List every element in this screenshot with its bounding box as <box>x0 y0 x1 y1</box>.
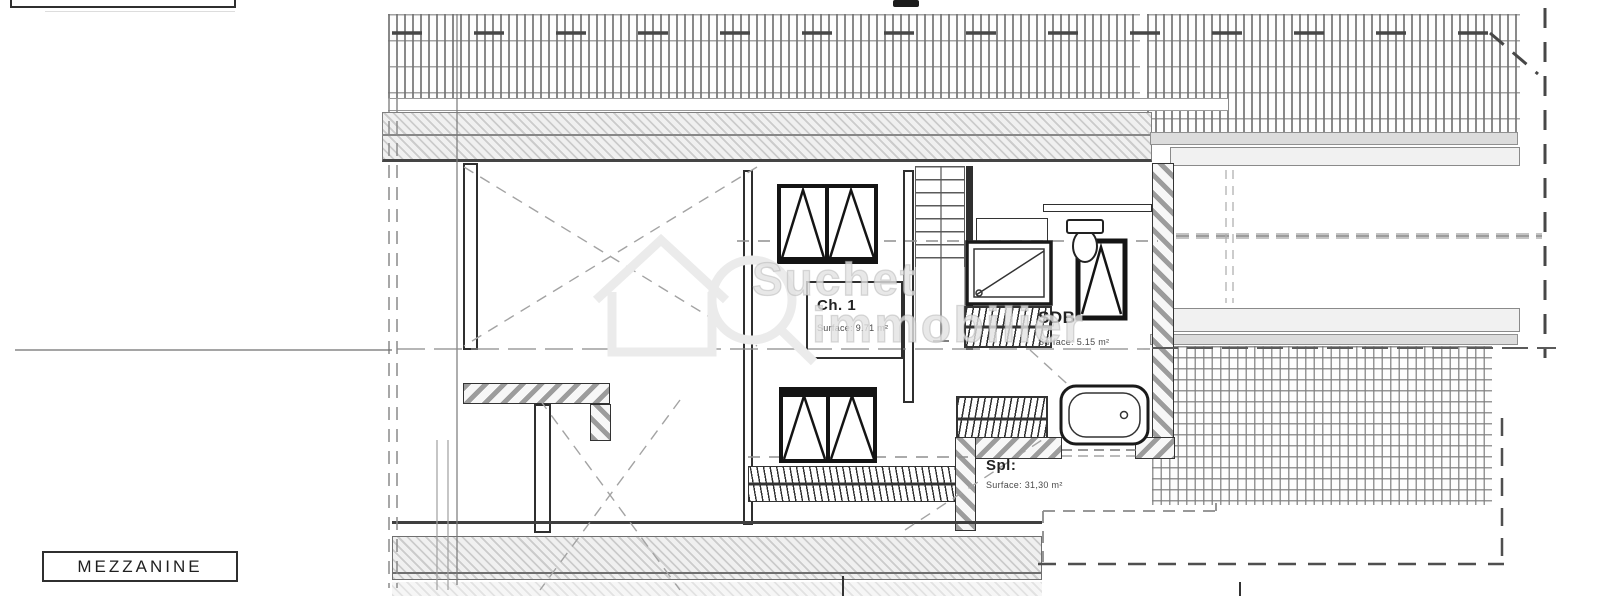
staircase-centerline <box>933 166 949 341</box>
room-name-sdb: SDB <box>1038 308 1158 328</box>
room-name-ch1: Ch. 1 <box>817 297 901 314</box>
room-surface-spl: Surface: 31,30 m² <box>986 480 1126 490</box>
room-label-ch1: Ch. 1 Surface: 9.71 m² <box>806 281 903 359</box>
room-surface-sdb: Surface: 5.15 m² <box>1038 337 1158 347</box>
floor-label: MEZZANINE <box>77 557 202 577</box>
bathtub <box>1061 386 1148 444</box>
reference-ticks <box>843 576 1240 596</box>
floor-plan-canvas: Ch. 1 Surface: 9.71 m² SDB Surface: 5.15… <box>0 0 1600 596</box>
room-surface-ch1: Surface: 9.71 m² <box>817 323 901 333</box>
roof-window-bedroom-lower <box>781 389 875 461</box>
roof-edge-lines-left <box>437 14 457 590</box>
room-label-spl: Spl: Surface: 31,30 m² <box>986 457 1126 490</box>
section-line <box>15 348 1556 350</box>
dormer-dashed-lines <box>1176 170 1542 303</box>
room-label-sdb: SDB Surface: 5.15 m² <box>1038 308 1158 347</box>
shower <box>967 242 1051 304</box>
roof-window-bedroom-upper <box>779 186 876 262</box>
floor-label-box: MEZZANINE <box>42 551 238 582</box>
linework-overlay <box>0 0 1600 596</box>
spl-door-dashes <box>1062 450 1136 456</box>
room-name-spl: Spl: <box>986 457 1126 474</box>
axis-dashed-left <box>389 55 397 588</box>
